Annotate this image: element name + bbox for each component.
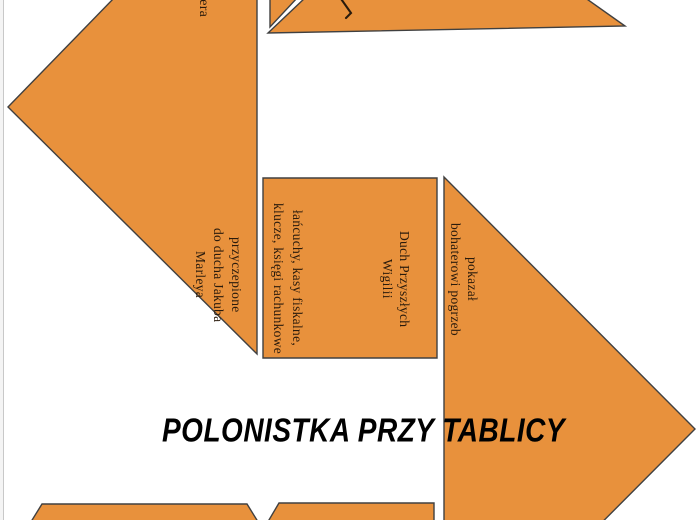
future-ghost-label-line: Wigilii <box>379 225 396 333</box>
marley-label-line: Marleya <box>191 195 209 355</box>
bottom-left-shape <box>29 504 260 520</box>
future-ghost-label: Duch Przyszłych Wigilii <box>379 225 413 333</box>
worksheet-page: tera przyczepione do ducha Jakuba Marley… <box>0 0 700 520</box>
chains-label: łańcuchy, kasy fiskalne, klucze, księgi … <box>269 197 307 360</box>
chains-label-line: klucze, księgi rachunkowe <box>269 197 288 360</box>
right-arrow-shape <box>444 177 695 520</box>
bottom-center-shape <box>266 503 434 520</box>
funeral-label-line: bohaterowi pogrzeb <box>447 186 464 373</box>
marley-label-line: przyczepione <box>227 195 245 355</box>
page-title: POLONISTKA PRZY TABLICY <box>162 412 565 450</box>
top-strip-shape <box>268 0 625 33</box>
future-ghost-label-line: Duch Przyszłych <box>396 225 413 333</box>
funeral-label: pokazał bohaterowi pogrzeb <box>447 186 481 373</box>
marley-label-line: do ducha Jakuba <box>209 195 227 355</box>
funeral-label-line: pokazał <box>464 186 481 373</box>
marley-label: przyczepione do ducha Jakuba Marleya <box>191 195 245 355</box>
left-arrow-label-fragment: tera <box>194 0 212 29</box>
chains-label-line: łańcuchy, kasy fiskalne, <box>288 197 307 360</box>
